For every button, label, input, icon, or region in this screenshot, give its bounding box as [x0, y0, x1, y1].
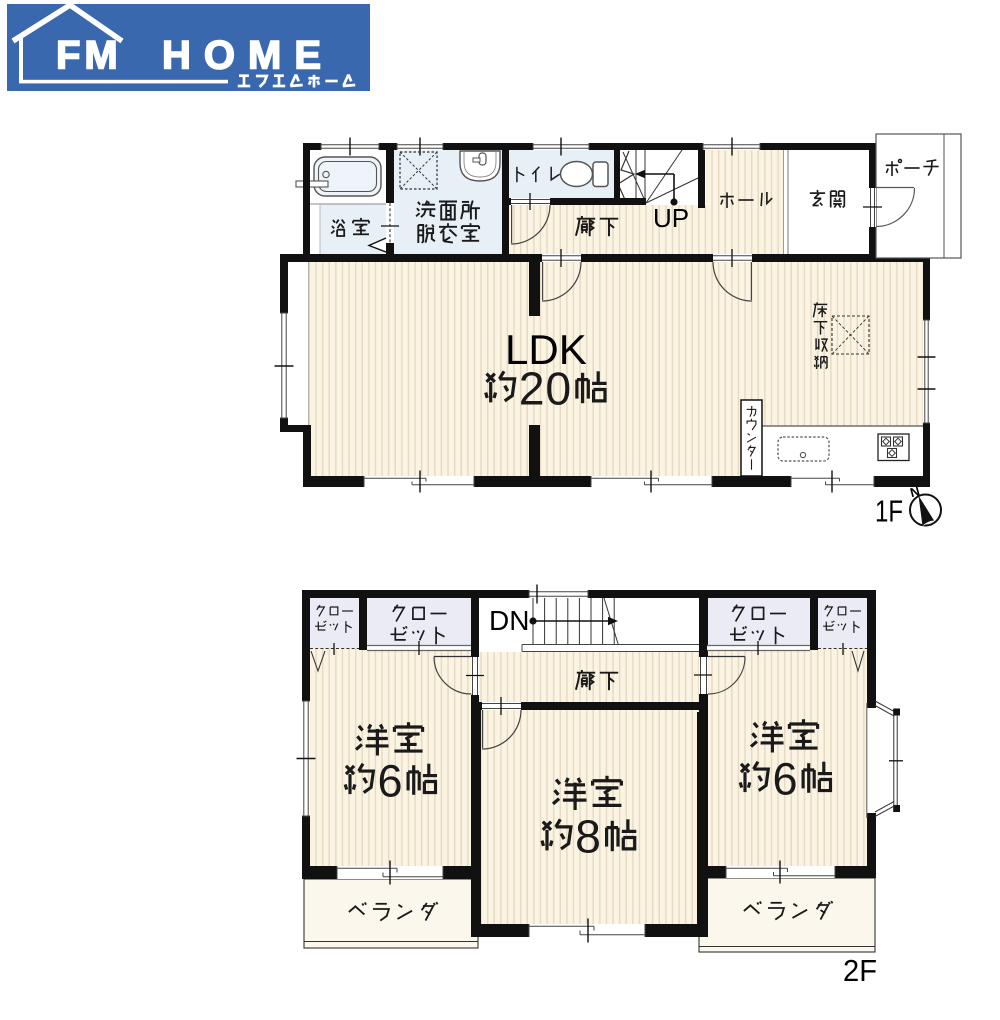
- svg-text:2: 2: [519, 363, 545, 415]
- svg-text:2F: 2F: [843, 953, 877, 988]
- svg-text:UP: UP: [653, 203, 689, 233]
- svg-text:8: 8: [575, 811, 601, 863]
- svg-text:1F: 1F: [875, 494, 903, 529]
- svg-text:0: 0: [545, 363, 571, 415]
- svg-text:6: 6: [772, 753, 797, 804]
- svg-text:6: 6: [377, 755, 402, 806]
- svg-text:DN: DN: [489, 605, 529, 636]
- svg-text:FM: FM: [56, 34, 122, 78]
- svg-text:HOME: HOME: [162, 34, 334, 78]
